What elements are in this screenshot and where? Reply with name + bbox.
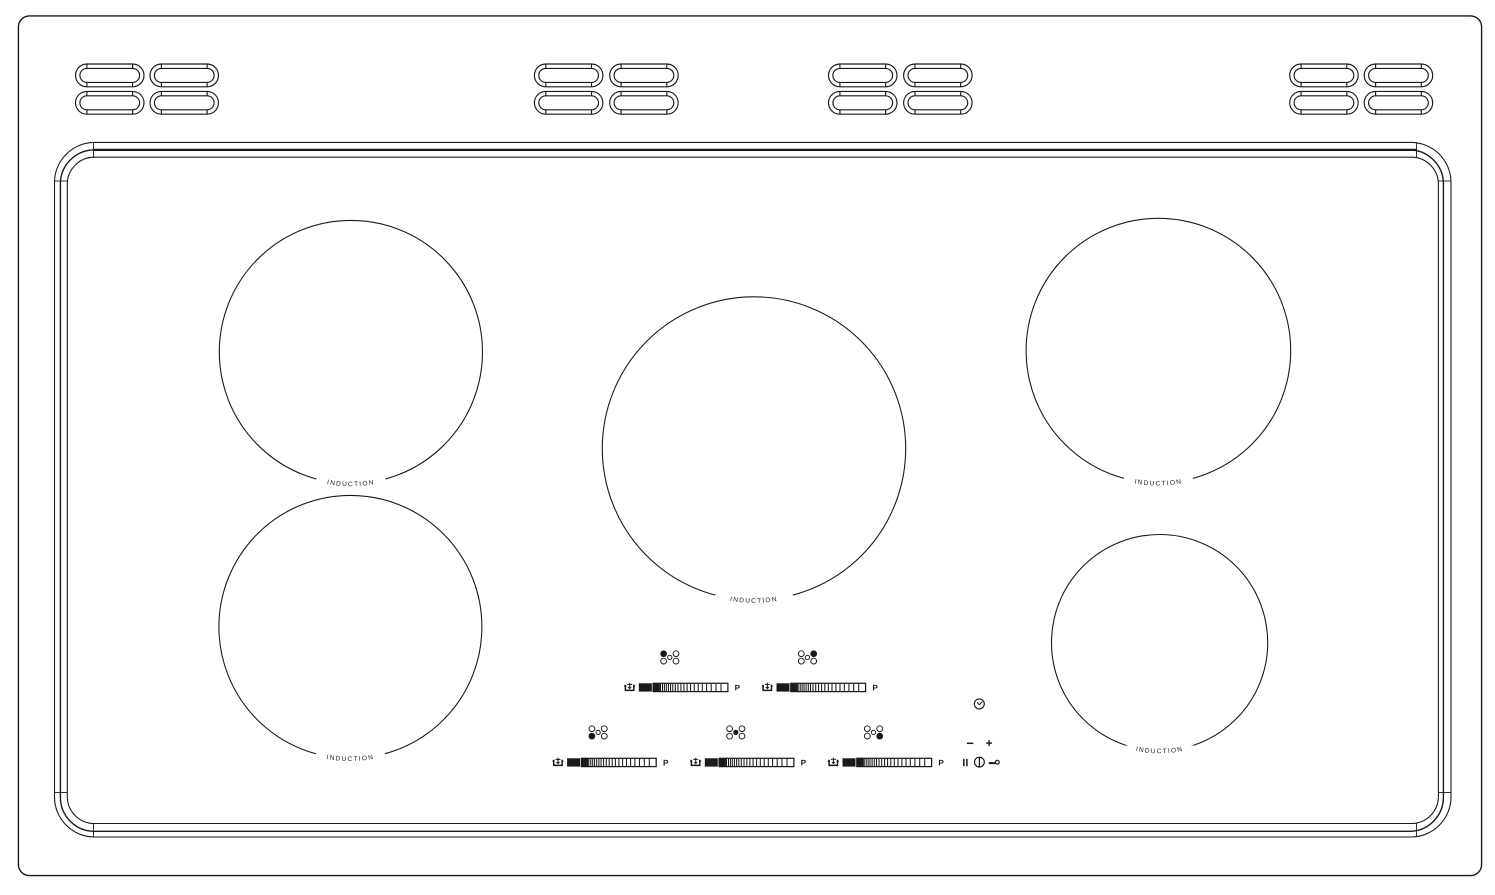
svg-text:P: P (938, 758, 944, 767)
svg-text:P: P (663, 758, 669, 767)
svg-text:P: P (872, 683, 878, 692)
svg-text:P: P (801, 758, 807, 767)
svg-text:P: P (735, 683, 741, 692)
